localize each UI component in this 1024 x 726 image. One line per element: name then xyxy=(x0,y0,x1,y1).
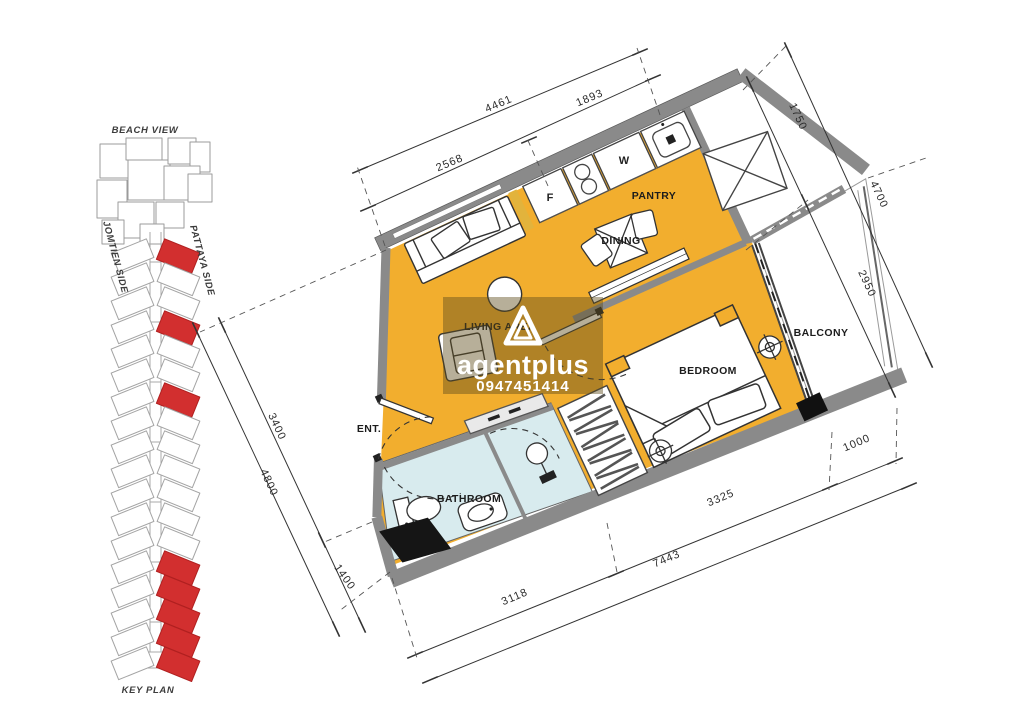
watermark-brand: agentplus xyxy=(457,350,589,380)
dim-top-right: 1893 xyxy=(574,87,605,109)
fridge-label: F xyxy=(547,192,554,204)
entrance-label: ENT. xyxy=(357,423,381,435)
dining-label: DINING xyxy=(601,235,640,247)
washer-label: W xyxy=(619,155,630,167)
key-plan-label: KEY PLAN xyxy=(122,685,175,696)
key-plan: BEACH VIEW KEY PLAN JOMTIEN SIDE PATTAYA… xyxy=(97,125,217,696)
watermark-phone: 0947451414 xyxy=(476,378,569,395)
beach-view-label: BEACH VIEW xyxy=(112,125,179,136)
dim-bottom-mid: 3325 xyxy=(705,487,736,509)
watermark: agentplus 0947451414 xyxy=(443,297,603,395)
bathroom-label: BATHROOM xyxy=(437,493,501,505)
pantry-label: PANTRY xyxy=(632,190,676,202)
unit-plan xyxy=(257,38,951,609)
dim-left-upper: 3400 xyxy=(265,411,288,442)
dim-bottom-left: 3118 xyxy=(500,586,530,608)
floor-plan-page: BEACH VIEW KEY PLAN JOMTIEN SIDE PATTAYA… xyxy=(0,0,1024,726)
dim-left-outer: 4800 xyxy=(257,467,280,498)
dim-bottom-right: 1000 xyxy=(841,432,872,454)
balcony-label: BALCONY xyxy=(794,327,849,339)
key-plan-right-wings xyxy=(156,239,199,682)
bedroom-label: BEDROOM xyxy=(679,365,737,377)
key-plan-left-wings xyxy=(111,239,154,680)
dim-right-outer: 4700 xyxy=(867,179,890,210)
dim-bottom-outer: 7443 xyxy=(651,548,682,570)
